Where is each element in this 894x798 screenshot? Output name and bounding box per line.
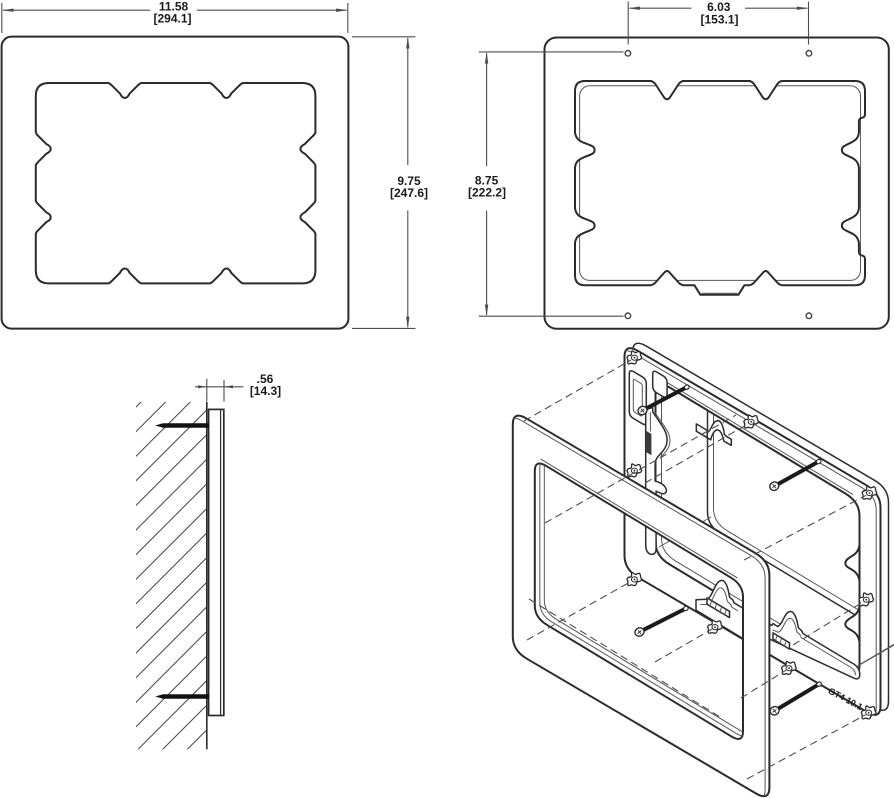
svg-text:[14.3]: [14.3]: [250, 384, 281, 398]
svg-text:[294.1]: [294.1]: [153, 11, 191, 25]
svg-text:[247.6]: [247.6]: [390, 186, 428, 200]
svg-text:[222.2]: [222.2]: [468, 186, 506, 200]
svg-text:[153.1]: [153.1]: [700, 12, 738, 26]
